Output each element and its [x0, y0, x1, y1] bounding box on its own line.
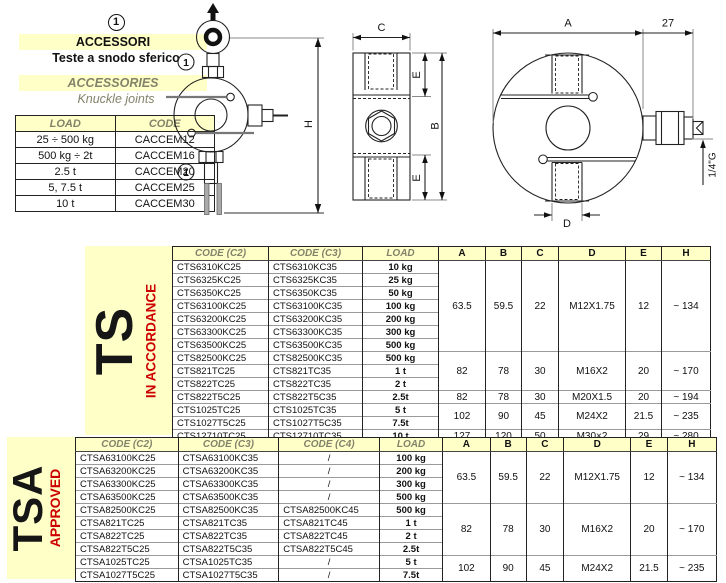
dim-c-cell: 30 — [526, 504, 563, 556]
dim-c-header: C — [522, 247, 559, 261]
c2-cell: CTS63500KC25 — [173, 339, 269, 352]
c2-cell: CTS63100KC25 — [173, 300, 269, 313]
knuckle-ref-mark-bottom: 1 — [178, 164, 194, 180]
dim-d-cell: M12X1.75 — [559, 261, 626, 352]
col0-cell: 5, 7.5 t — [16, 180, 116, 196]
load-cell: 500 kg — [379, 491, 442, 504]
c2-cell: CTS821TC25 — [173, 365, 269, 378]
dim-e-cell: 12 — [631, 452, 667, 504]
h-dimension: H — [224, 38, 324, 213]
datasheet-page: 1 ACCESSORI Teste a snodo sferico ACCESS… — [0, 0, 726, 583]
dim-a-cell: 82 — [439, 391, 486, 404]
c3-cell: CTSA63300KC35 — [178, 478, 279, 491]
dim-d-header: D — [559, 247, 626, 261]
tsa-label-box: TSA APPROVED — [7, 437, 75, 579]
table-row: CTS82500KC25CTS82500KC35500 kg827830M16X… — [173, 352, 711, 365]
c3-cell: CTSA1027T5C35 — [178, 569, 279, 582]
svg-text:B: B — [430, 122, 442, 129]
c3-cell: CTS82500KC35 — [269, 352, 363, 365]
load-cell: 1 t — [379, 517, 442, 530]
load-cell: 25 kg — [363, 274, 439, 287]
load-cell: 100 kg — [379, 452, 442, 465]
load-cell: 100 kg — [363, 300, 439, 313]
dim-h-cell: ~ 134 — [662, 261, 711, 352]
table-row: CTSA1025TC25CTSA1025TC35/5 t1029045M24X2… — [76, 556, 717, 569]
c2-cell: CTS822T5C25 — [173, 391, 269, 404]
dim-a-cell: 102 — [443, 556, 490, 582]
dim-h-cell: ~ 170 — [667, 504, 716, 556]
dim-d-cell: M24X2 — [559, 404, 626, 430]
c4-cell: CTSA82500KC45 — [279, 504, 380, 517]
dim-e-cell: 20 — [626, 391, 662, 404]
load-direction-arrow — [207, 3, 219, 21]
c4-cell: / — [279, 478, 380, 491]
ref-mark-1: 1 — [108, 14, 125, 31]
svg-text:E: E — [411, 174, 423, 181]
c2-cell: CTSA822T5C25 — [76, 543, 179, 556]
dim-a-header: A — [439, 247, 486, 261]
c4-cell: / — [279, 491, 380, 504]
load-cell: 300 kg — [363, 326, 439, 339]
c2-cell: CTS6350KC25 — [173, 287, 269, 300]
dim-a-cell: 63.5 — [443, 452, 490, 504]
cell-front-body — [493, 53, 643, 203]
table-row: CTS6310KC25CTS6310KC3510 kg63.559.522M12… — [173, 261, 711, 274]
load-header: LOAD — [16, 116, 116, 132]
dim-b-cell: 78 — [490, 504, 526, 556]
c2-cell: CTS82500KC25 — [173, 352, 269, 365]
dim-c-cell: 45 — [526, 556, 563, 582]
ts-spec-table: CODE (C2) CODE (C3) LOAD A B C D E H CTS… — [172, 246, 711, 443]
c3-cell: CTS1025TC35 — [269, 404, 363, 417]
c4-cell: CTSA822TC45 — [279, 530, 380, 543]
dim-h-cell: ~ 134 — [667, 452, 716, 504]
dim-b-cell: 90 — [486, 404, 522, 430]
dim-e-cell: 20 — [631, 504, 667, 556]
dim-e-cell: 21.5 — [631, 556, 667, 582]
c3-cell: CTSA63100KC35 — [178, 452, 279, 465]
c3-cell: CTSA822TC35 — [178, 530, 279, 543]
ts-table-block: TS IN ACCORDANCE CODE (C2) CODE (C3) LOA… — [85, 246, 711, 435]
c3-cell: CTS63100KC35 — [269, 300, 363, 313]
center-hole — [546, 106, 590, 150]
load-cell: 2.5t — [363, 391, 439, 404]
c2-cell: CTSA63200KC25 — [76, 465, 179, 478]
ts-label-box: TS IN ACCORDANCE — [85, 246, 172, 435]
thread-dimension: 1/4"G — [692, 139, 719, 185]
dim-b-cell: 59.5 — [490, 452, 526, 504]
load-cell: 500 kg — [363, 339, 439, 352]
c2-cell: CTSA1025TC25 — [76, 556, 179, 569]
load-cell: 1 t — [363, 365, 439, 378]
dim-a-header: A — [443, 438, 490, 452]
dim-h-header: H — [667, 438, 716, 452]
cable-connector — [248, 105, 288, 126]
c3-cell: CTS63500KC35 — [269, 339, 363, 352]
load-cell: 300 kg — [379, 478, 442, 491]
dim-c-cell: 45 — [522, 404, 559, 430]
load-cell: 5 t — [379, 556, 442, 569]
side-view-drawing: 1 1 H — [148, 2, 333, 217]
c2-cell: CTS1025TC25 — [173, 404, 269, 417]
col0-cell: 25 ÷ 500 kg — [16, 132, 116, 148]
dim-b-cell: 78 — [486, 391, 522, 404]
dim-d-cell: M24X2 — [563, 556, 630, 582]
c4-cell: / — [279, 452, 380, 465]
code-c3-header: CODE (C3) — [178, 438, 279, 452]
c3-cell: CTS63300KC35 — [269, 326, 363, 339]
load-cell: 200 kg — [363, 313, 439, 326]
c2-cell: CTS63300KC25 — [173, 326, 269, 339]
c3-cell: CTSA63500KC35 — [178, 491, 279, 504]
c2-cell: CTSA821TC25 — [76, 517, 179, 530]
c2-cell: CTSA1027T5C25 — [76, 569, 179, 582]
svg-text:1/4"G: 1/4"G — [708, 152, 719, 177]
dim-d-cell: M20X1.5 — [559, 391, 626, 404]
load-cell: 50 kg — [363, 287, 439, 300]
load-cell: 10 kg — [363, 261, 439, 274]
dim-b-cell: 90 — [490, 556, 526, 582]
c3-cell: CTS6325KC35 — [269, 274, 363, 287]
c3-cell: CTS6310KC35 — [269, 261, 363, 274]
c3-cell: CTSA82500KC35 — [178, 504, 279, 517]
dim-h-header: H — [662, 247, 711, 261]
load-header: LOAD — [363, 247, 439, 261]
c3-cell: CTSA1025TC35 — [178, 556, 279, 569]
dim-b-cell: 78 — [486, 352, 522, 391]
dim-e-cell: 20 — [626, 352, 662, 391]
c2-cell: CTSA822TC25 — [76, 530, 179, 543]
c3-cell: CTS822TC35 — [269, 378, 363, 391]
dim-e-header: E — [626, 247, 662, 261]
c3-cell: CTS821TC35 — [269, 365, 363, 378]
load-cell: 500 kg — [379, 504, 442, 517]
c3-cell: CTS63200KC35 — [269, 313, 363, 326]
c3-cell: CTS1027T5C35 — [269, 417, 363, 430]
c2-cell: CTS6310KC25 — [173, 261, 269, 274]
offset-27-dimension: 27 — [643, 18, 693, 120]
table-row: CTSA82500KC25CTSA82500KC35CTSA82500KC455… — [76, 504, 717, 517]
c4-cell: CTSA821TC45 — [279, 517, 380, 530]
svg-text:E: E — [411, 71, 423, 78]
load-cell: 7.5t — [363, 417, 439, 430]
load-cell: 2.5t — [379, 543, 442, 556]
load-cell: 200 kg — [379, 465, 442, 478]
load-cell: 2 t — [363, 378, 439, 391]
dim-e-cell: 21.5 — [626, 404, 662, 430]
d-dimension: D — [534, 203, 600, 230]
svg-text:C: C — [378, 22, 386, 34]
svg-text:H: H — [303, 120, 315, 128]
load-cell: 7.5t — [379, 569, 442, 582]
c2-cell: CTS6325KC25 — [173, 274, 269, 287]
c2-cell: CTS1027T5C25 — [173, 417, 269, 430]
col0-cell: 10 t — [16, 196, 116, 212]
dim-a-cell: 63.5 — [439, 261, 486, 352]
load-cell-body — [174, 78, 248, 152]
table-row: CTSA63100KC25CTSA63100KC35/100 kg63.559.… — [76, 452, 717, 465]
dim-d-header: D — [563, 438, 630, 452]
svg-text:A: A — [564, 18, 572, 30]
col0-cell: 500 kg ÷ 2t — [16, 148, 116, 164]
dim-e-cell: 12 — [626, 261, 662, 352]
dim-b-header: B — [486, 247, 522, 261]
c4-cell: / — [279, 465, 380, 478]
cable-gland — [643, 112, 703, 145]
dim-h-cell: ~ 235 — [667, 556, 716, 582]
dim-d-cell: M16X2 — [559, 352, 626, 391]
dim-c-header: C — [526, 438, 563, 452]
c3-cell: CTS6350KC35 — [269, 287, 363, 300]
svg-text:27: 27 — [662, 18, 674, 30]
dim-e-header: E — [631, 438, 667, 452]
tsa-status-label: APPROVED — [47, 469, 63, 548]
front-view-drawing: A 27 1/4"G D — [488, 5, 726, 230]
table-row: CTS822T5C25CTS822T5C352.5t827830M20X1.52… — [173, 391, 711, 404]
dim-d-cell: M16X2 — [563, 504, 630, 556]
c2-cell: CTS822TC25 — [173, 378, 269, 391]
dim-c-cell: 22 — [526, 452, 563, 504]
hex-nut — [366, 110, 398, 142]
col0-cell: 2.5 t — [16, 164, 116, 180]
c2-cell: CTS63200KC25 — [173, 313, 269, 326]
code-c2-header: CODE (C2) — [76, 438, 179, 452]
c-dimension: C — [353, 22, 410, 51]
code-c4-header: CODE (C4) — [279, 438, 380, 452]
b-dimension: B — [430, 53, 445, 200]
c2-cell: CTSA82500KC25 — [76, 504, 179, 517]
table-row: CTS1025TC25CTS1025TC355 t1029045M24X221.… — [173, 404, 711, 417]
dim-c-cell: 30 — [522, 391, 559, 404]
svg-text:1: 1 — [183, 167, 189, 179]
tsa-spec-table: CODE (C2) CODE (C3) CODE (C4) LOAD A B C… — [75, 437, 717, 582]
c2-cell: CTSA63300KC25 — [76, 478, 179, 491]
table-header-row: CODE (C2) CODE (C3) CODE (C4) LOAD A B C… — [76, 438, 717, 452]
load-cell: 2 t — [379, 530, 442, 543]
dim-b-header: B — [490, 438, 526, 452]
c3-cell: CTS822T5C35 — [269, 391, 363, 404]
dim-c-cell: 22 — [522, 261, 559, 352]
c3-cell: CTSA822T5C35 — [178, 543, 279, 556]
code-c2-header: CODE (C2) — [173, 247, 269, 261]
tsa-series-label: TSA — [4, 465, 52, 552]
load-cell: 5 t — [363, 404, 439, 417]
table-header-row: CODE (C2) CODE (C3) LOAD A B C D E H — [173, 247, 711, 261]
dim-a-cell: 82 — [443, 504, 490, 556]
c4-cell: / — [279, 556, 380, 569]
c3-cell: CTSA63200KC35 — [178, 465, 279, 478]
profile-view-drawing: C E E B — [342, 12, 464, 214]
ts-series-label: TS — [85, 306, 145, 374]
dim-h-cell: ~ 235 — [662, 404, 711, 430]
load-cell: 500 kg — [363, 352, 439, 365]
svg-text:D: D — [563, 218, 571, 230]
dim-d-cell: M12X1.75 — [563, 452, 630, 504]
svg-text:1: 1 — [183, 57, 189, 69]
ts-status-label: IN ACCORDANCE — [144, 283, 159, 397]
tsa-table-block: TSA APPROVED CODE (C2) CODE (C3) CODE (C… — [7, 437, 717, 579]
dim-a-cell: 82 — [439, 352, 486, 391]
code-c3-header: CODE (C3) — [269, 247, 363, 261]
dim-a-cell: 102 — [439, 404, 486, 430]
c2-cell: CTSA63500KC25 — [76, 491, 179, 504]
dim-b-cell: 59.5 — [486, 261, 522, 352]
knuckle-ref-mark-top: 1 — [178, 54, 194, 70]
c3-cell: CTSA821TC35 — [178, 517, 279, 530]
dim-h-cell: ~ 194 — [662, 391, 711, 404]
dim-c-cell: 30 — [522, 352, 559, 391]
c4-cell: / — [279, 569, 380, 582]
load-header: LOAD — [379, 438, 442, 452]
c2-cell: CTSA63100KC25 — [76, 452, 179, 465]
dim-h-cell: ~ 170 — [662, 352, 711, 391]
a-dimension: A — [493, 18, 643, 124]
c4-cell: CTSA822T5C45 — [279, 543, 380, 556]
